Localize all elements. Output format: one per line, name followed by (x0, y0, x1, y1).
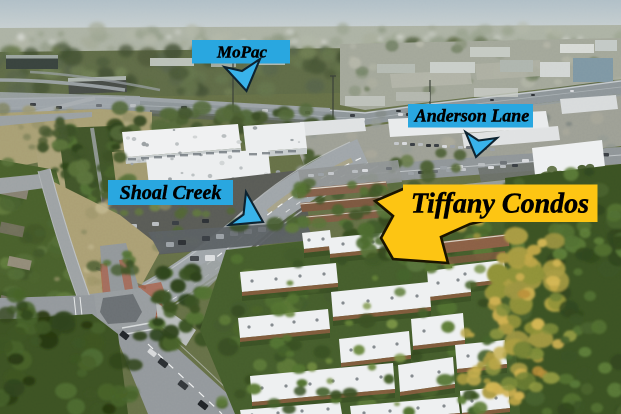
svg-text:Tiffany Condos: Tiffany Condos (411, 189, 589, 220)
svg-text:Anderson Lane: Anderson Lane (414, 106, 530, 126)
svg-text:Shoal Creek: Shoal Creek (120, 182, 222, 204)
